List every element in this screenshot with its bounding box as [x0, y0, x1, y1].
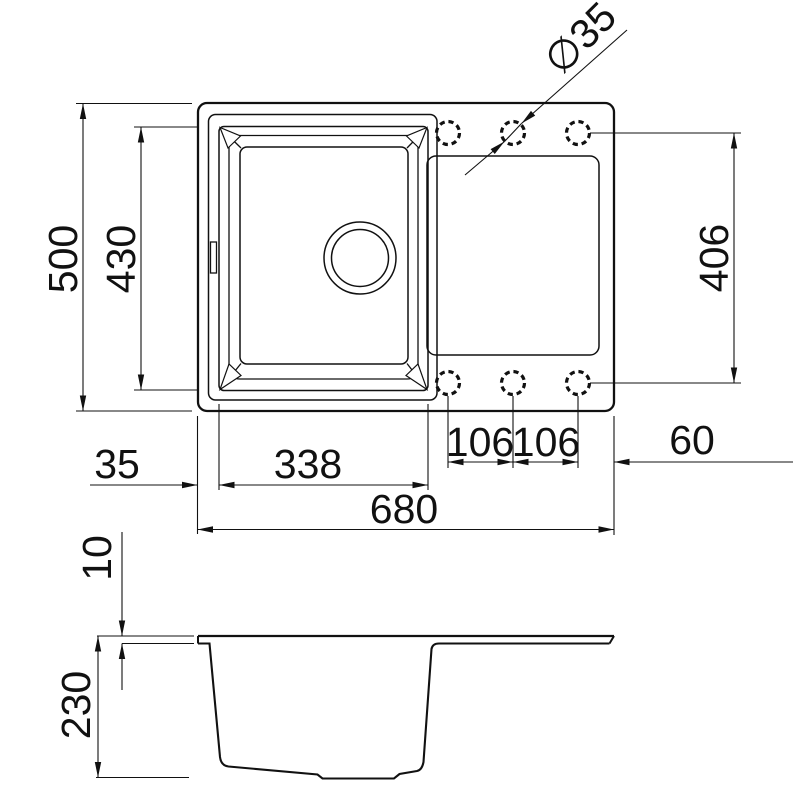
- tap-hole-5: [502, 372, 525, 395]
- bowl-section-profile: [198, 644, 610, 779]
- side-view: [97, 636, 614, 779]
- label-hole-rows-spacing: 406: [691, 224, 737, 292]
- tap-hole-3: [567, 122, 590, 145]
- slab-right-cap: [610, 636, 615, 644]
- bowl-rim: [209, 115, 438, 401]
- label-bowl-height: 230: [53, 671, 99, 739]
- tap-holes: [437, 122, 590, 395]
- label-hole-pitch-2: 106: [512, 419, 580, 465]
- label-hole-right-offset: 60: [669, 417, 715, 463]
- label-hole-pitch-1: 106: [446, 419, 514, 465]
- label-overall-width: 680: [370, 486, 438, 532]
- drainboard: [427, 156, 599, 355]
- label-left-offset: 35: [94, 441, 140, 487]
- tap-hole-4: [437, 372, 460, 395]
- drain-inner-circle: [332, 230, 389, 287]
- overflow-notch: [211, 242, 217, 273]
- label-hole-diameter: ∅35: [535, 0, 625, 83]
- label-bowl-width: 338: [274, 441, 342, 487]
- tap-hole-1: [437, 122, 460, 145]
- tap-hole-6: [567, 372, 590, 395]
- label-bowl-depth: 430: [98, 225, 144, 293]
- label-overall-depth: 500: [40, 225, 86, 293]
- dimension-labels: 500 430 406 35 338 680 106 106 60 ∅35 10…: [40, 0, 737, 739]
- technical-drawing-page: 500 430 406 35 338 680 106 106 60 ∅35 10…: [0, 0, 800, 800]
- label-rim-thickness: 10: [74, 535, 120, 581]
- drain-outer-circle: [324, 222, 396, 294]
- top-view: [198, 103, 614, 411]
- sink-technical-drawing: 500 430 406 35 338 680 106 106 60 ∅35 10…: [0, 0, 800, 800]
